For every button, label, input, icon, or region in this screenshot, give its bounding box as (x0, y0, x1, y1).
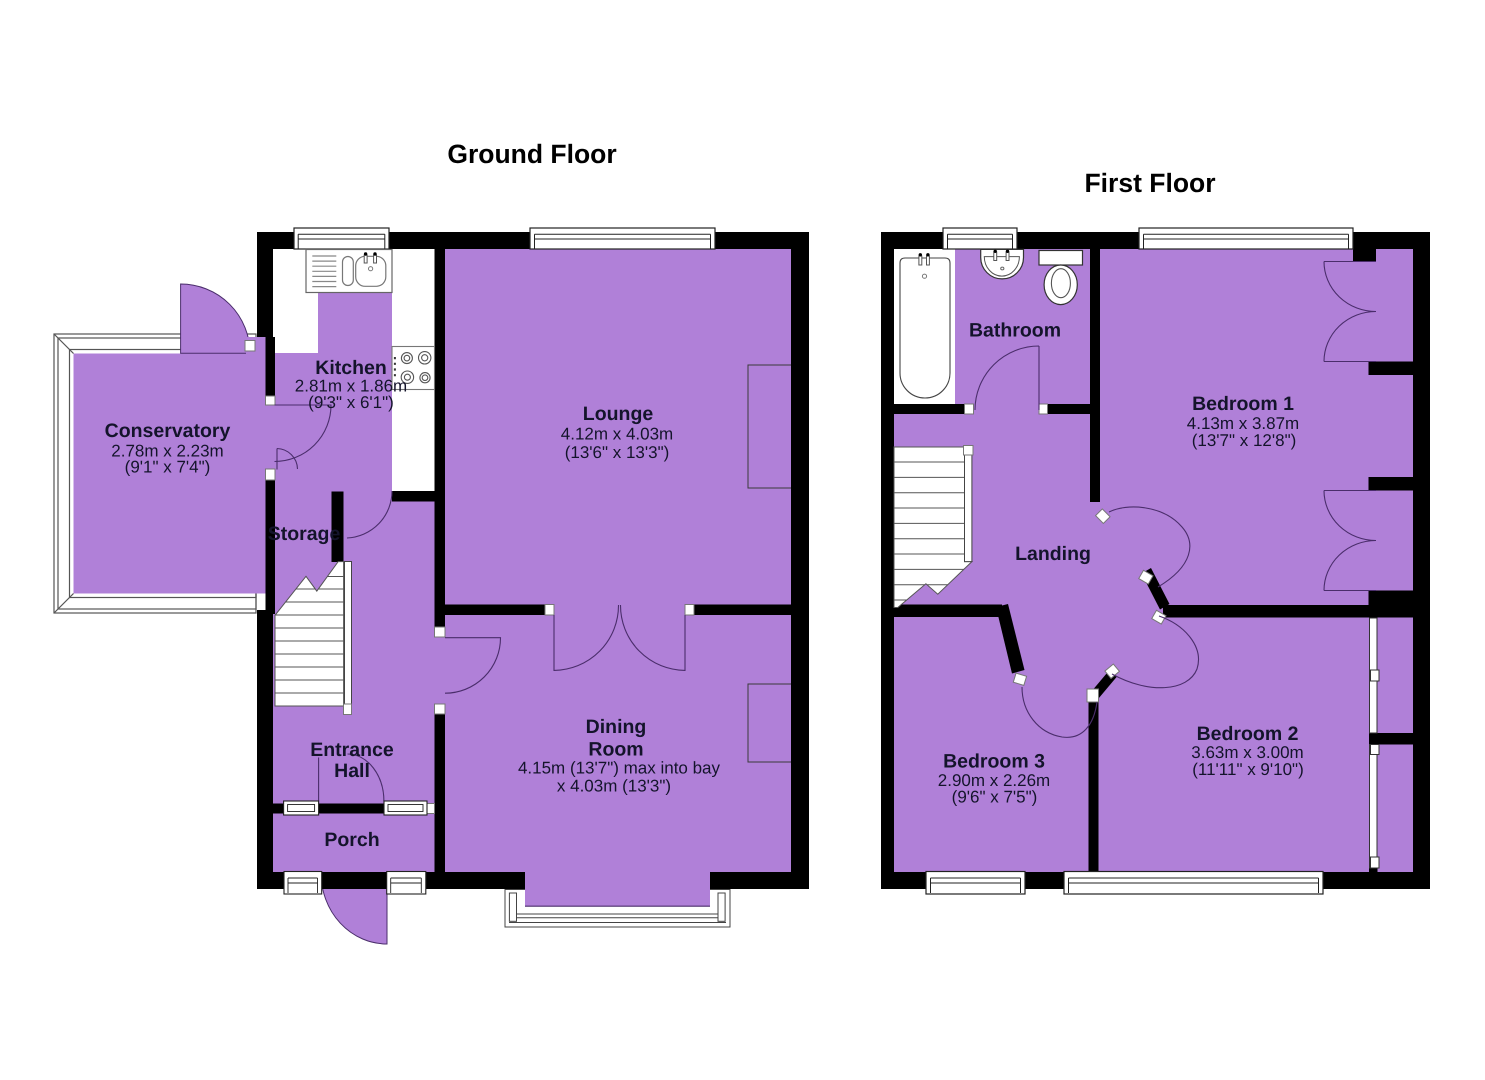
svg-text:(9'3" x 6'1"): (9'3" x 6'1") (308, 393, 394, 412)
svg-text:Hall: Hall (334, 760, 370, 782)
svg-text:(11'11" x 9'10"): (11'11" x 9'10") (1192, 760, 1304, 779)
svg-text:Porch: Porch (324, 829, 379, 851)
svg-text:x 4.03m (13'3"): x 4.03m (13'3") (557, 777, 671, 796)
svg-text:4.12m x 4.03m: 4.12m x 4.03m (561, 425, 673, 444)
svg-text:Storage: Storage (268, 523, 341, 545)
svg-text:Landing: Landing (1015, 543, 1091, 565)
svg-text:(13'7" x 12'8"): (13'7" x 12'8") (1192, 431, 1297, 450)
svg-text:(9'1" x 7'4"): (9'1" x 7'4") (125, 458, 211, 477)
svg-text:Bathroom: Bathroom (969, 320, 1061, 342)
svg-text:(13'6" x 13'3"): (13'6" x 13'3") (565, 443, 670, 462)
svg-text:Dining: Dining (586, 716, 647, 738)
svg-text:Lounge: Lounge (583, 403, 654, 425)
svg-text:Room: Room (588, 739, 643, 761)
svg-text:Conservatory: Conservatory (105, 420, 231, 442)
svg-text:Bedroom 3: Bedroom 3 (943, 751, 1045, 773)
svg-text:Ground Floor: Ground Floor (447, 139, 616, 169)
svg-text:Bedroom 2: Bedroom 2 (1197, 723, 1299, 745)
svg-text:Entrance: Entrance (310, 739, 394, 761)
svg-text:Bedroom 1: Bedroom 1 (1192, 393, 1294, 415)
svg-text:4.15m (13'7") max into bay: 4.15m (13'7") max into bay (518, 759, 721, 778)
svg-text:First Floor: First Floor (1084, 168, 1215, 198)
svg-text:(9'6" x 7'5"): (9'6" x 7'5") (952, 788, 1038, 807)
